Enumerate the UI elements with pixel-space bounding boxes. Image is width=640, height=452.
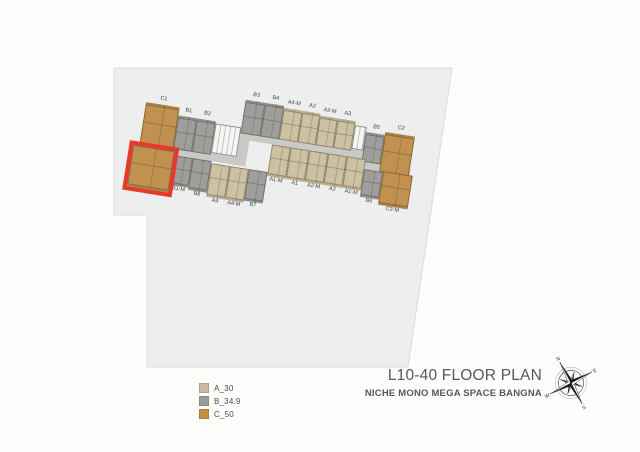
unit-label-a2-m: A2-M [307,182,321,190]
compass-east-label: E [592,367,598,374]
unit-label-a2: A2 [309,103,317,110]
unit-label-b7: B7 [249,202,257,209]
unit-b7[interactable] [244,169,268,204]
unit-label-b3: B3 [253,92,261,99]
unit-label-b1-m: B1-M [171,185,185,193]
legend-label-a30: A_30 [214,384,233,393]
unit-core [211,123,241,157]
unit-label-c2: C2 [397,125,405,132]
unit-label-b8: B8 [193,191,201,198]
unit-label-b6: B6 [365,198,373,205]
unit-label-a2: A2 [328,186,336,193]
legend-label-c50: C_50 [214,410,234,419]
compass-west-label: W [544,393,551,401]
unit-label-a1: A1 [291,180,299,187]
unit-c2[interactable] [379,132,415,176]
legend-label-b349: B_34.9 [214,397,241,406]
unit-label-a3: A3 [344,110,352,117]
legend-swatch-a-icon [199,383,209,393]
unit-label-b2: B2 [204,110,212,117]
unit-label-c1: C1 [160,95,168,102]
unit-c3-selected[interactable] [127,145,175,193]
unit-label-b5: B5 [373,124,381,131]
unit-label-b4: B4 [272,95,280,102]
compass-north-label: N [555,356,561,363]
unit-label-a1-m: A1-M [269,176,283,184]
unit-label-b1: B1 [185,107,193,114]
unit-label-c2-m: C2-M [385,206,399,214]
unit-label-a1-m: A1-M [344,188,358,196]
plan-title: L10-40 FLOOR PLAN [365,367,542,385]
legend-item-b349: B_34.9 [199,396,241,406]
legend-swatch-c-icon [199,409,209,419]
plan-subtitle: NICHE MONO MEGA SPACE BANGNA [365,388,542,399]
unit-type-legend: A_30 B_34.9 C_50 [199,383,241,422]
title-block: L10-40 FLOOR PLAN NICHE MONO MEGA SPACE … [365,367,542,399]
legend-swatch-b-icon [199,396,209,406]
unit-label-a4-m: A4-M [227,200,241,208]
legend-item-a30: A_30 [199,383,241,393]
unit-c2-m[interactable] [378,171,413,209]
unit-label-a4: A4 [211,198,219,205]
legend-item-c50: C_50 [199,409,241,419]
